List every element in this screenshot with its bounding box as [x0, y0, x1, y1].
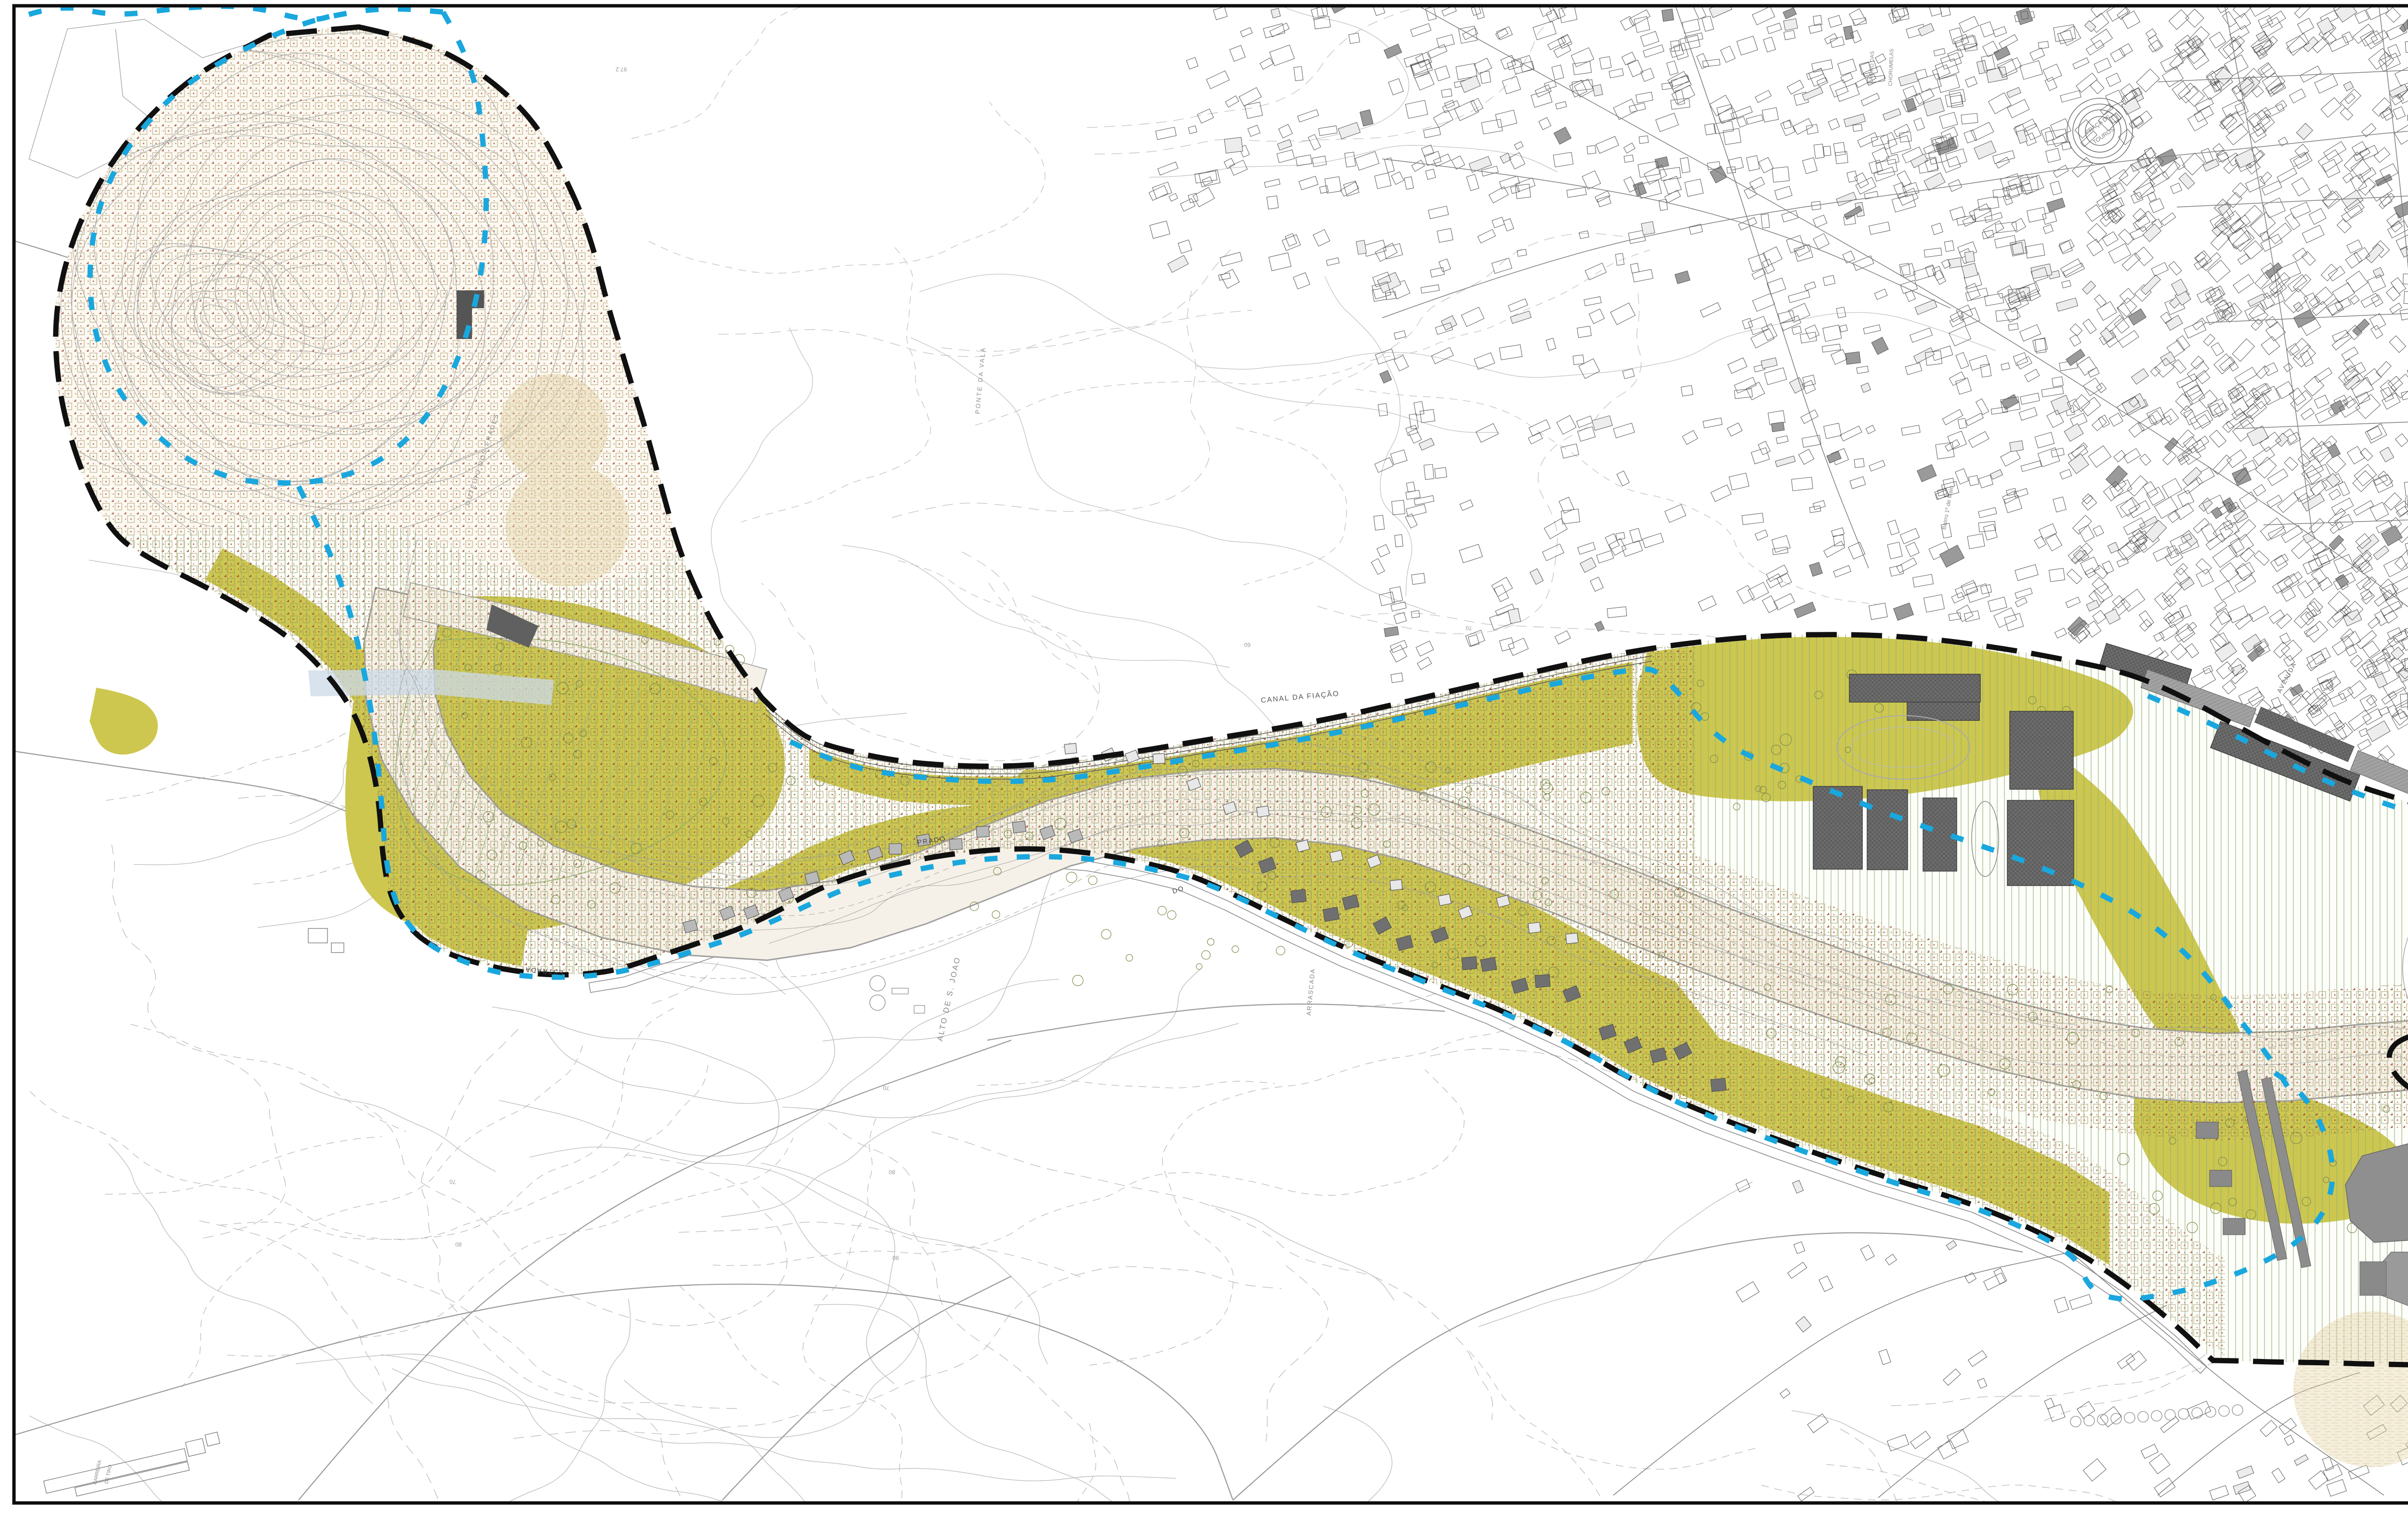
svg-text:90: 90	[892, 1254, 899, 1261]
svg-text:60: 60	[1244, 641, 1251, 648]
svg-text:97.2: 97.2	[615, 66, 627, 73]
svg-text:70: 70	[449, 1178, 456, 1185]
svg-text:70: 70	[883, 1084, 890, 1091]
svg-text:70: 70	[1466, 625, 1472, 631]
svg-text:80: 80	[455, 1241, 462, 1248]
svg-text:BAIRRO DAS: BAIRRO DAS	[1869, 51, 1875, 84]
svg-text:80: 80	[889, 1169, 895, 1175]
